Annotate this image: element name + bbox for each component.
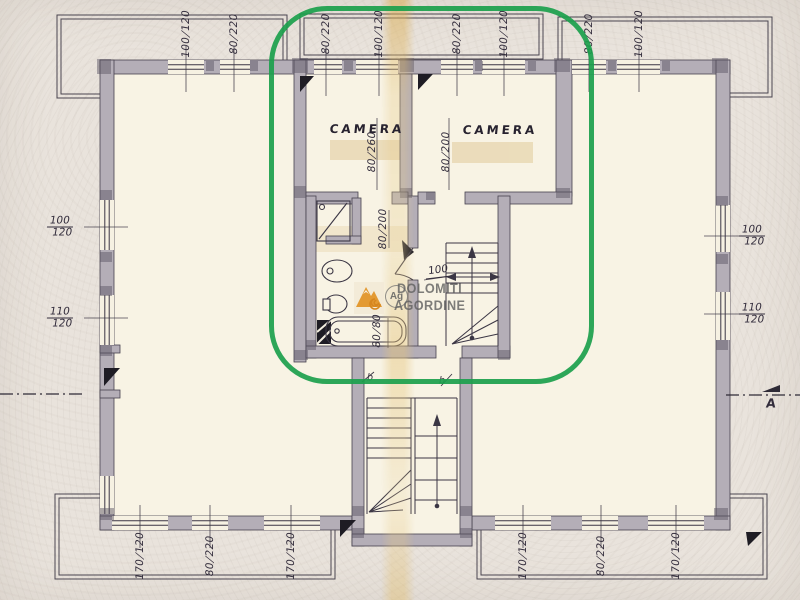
floorplan-drawing [0, 0, 800, 600]
scanned-floorplan: Ag DOLOMITI AGORDINE 100/12080/22080/220… [0, 0, 800, 600]
